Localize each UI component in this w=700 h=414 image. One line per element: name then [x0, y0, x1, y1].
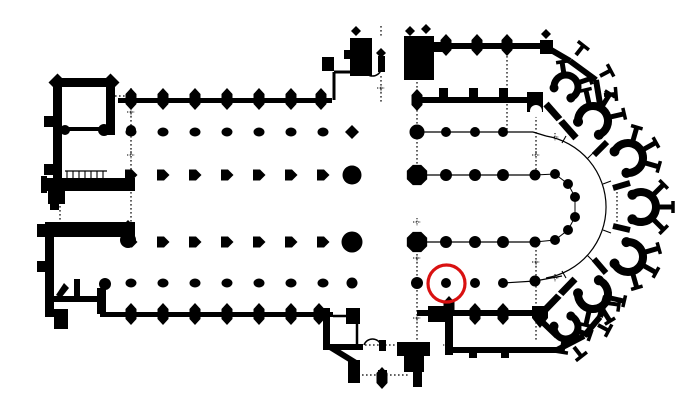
construction-guides-layer [60, 26, 617, 375]
masonry-layer [37, 24, 673, 389]
floor-plan-svg [0, 0, 700, 414]
white-marks-layer [530, 105, 566, 299]
cathedral-floor-plan [0, 0, 700, 414]
columns-layer [60, 124, 580, 290]
